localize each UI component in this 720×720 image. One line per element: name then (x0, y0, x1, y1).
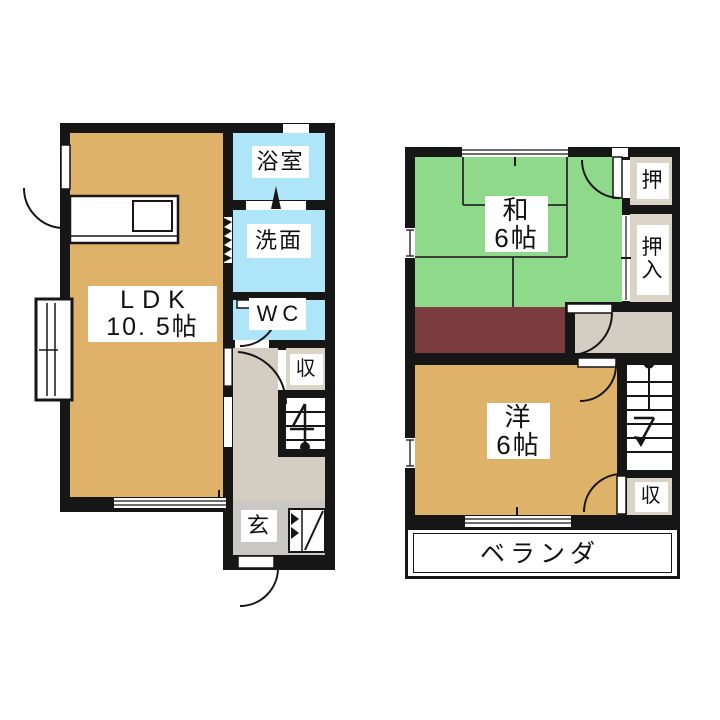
wall-segment (405, 147, 415, 527)
bath-window (283, 124, 309, 133)
ldk-south-window (114, 498, 226, 508)
western-room-label: 洋 6帖 (487, 403, 550, 459)
closet-1f-opening (278, 350, 286, 390)
floorplan-canvas: LDK 10. 5帖 浴室 洗面 WC 収 玄 (0, 0, 720, 720)
storage-2f-label: 収 (635, 482, 668, 512)
japanese-room-size: 6帖 (494, 224, 538, 252)
wall-segment (405, 353, 680, 365)
western-room-size: 6帖 (496, 431, 540, 459)
entrance-label: 玄 (241, 510, 277, 542)
wall-segment (60, 123, 70, 512)
closet-main-bottom: 入 (642, 260, 665, 283)
wall-segment (223, 133, 233, 555)
wall-segment (223, 555, 335, 570)
accordion-door (224, 217, 232, 263)
japanese-room-window (462, 147, 568, 157)
top-wall-notch (612, 148, 628, 157)
wall-segment (325, 123, 335, 570)
bath-label: 浴室 (252, 146, 309, 178)
hallway-2f (575, 312, 672, 353)
wall-segment (672, 147, 680, 527)
japanese-door-opening (622, 160, 630, 198)
storage-2f-opening (618, 478, 626, 514)
closet-main-top: 押 (642, 237, 665, 260)
wall-segment (622, 205, 672, 214)
closet-main-label: 押 入 (637, 225, 669, 295)
washroom-label: 洗面 (247, 224, 311, 258)
stairs-1f (286, 398, 325, 449)
ldk-hall-opening2 (224, 397, 232, 447)
left-window-2 (405, 438, 415, 468)
balcony-label: ベランダ (460, 540, 620, 568)
wall-segment (565, 302, 672, 312)
closet-main-opening (622, 215, 630, 301)
closet-upper-label: 押 (637, 163, 669, 199)
japanese-room-name: 和 (502, 196, 530, 224)
ldk-size: 10. 5帖 (106, 314, 199, 341)
wall-segment (278, 390, 325, 398)
wc-label: WC (249, 298, 306, 330)
western-room-name: 洋 (504, 403, 532, 431)
stairs-2f (627, 365, 672, 470)
ldk-hall-opening (224, 348, 232, 386)
japanese-room-label: 和 6帖 (485, 196, 548, 252)
wall-segment (627, 470, 672, 478)
left-window-1 (405, 228, 415, 258)
western-room-window (465, 516, 571, 527)
wc-door-opening (235, 340, 269, 348)
bath-door-opening (246, 201, 306, 210)
ldk-label: LDK 10. 5帖 (88, 286, 217, 342)
wall-segment (278, 449, 325, 457)
storage-1f-label: 収 (290, 354, 323, 385)
corridor-strip (415, 307, 565, 353)
ldk-name: LDK (112, 287, 193, 314)
